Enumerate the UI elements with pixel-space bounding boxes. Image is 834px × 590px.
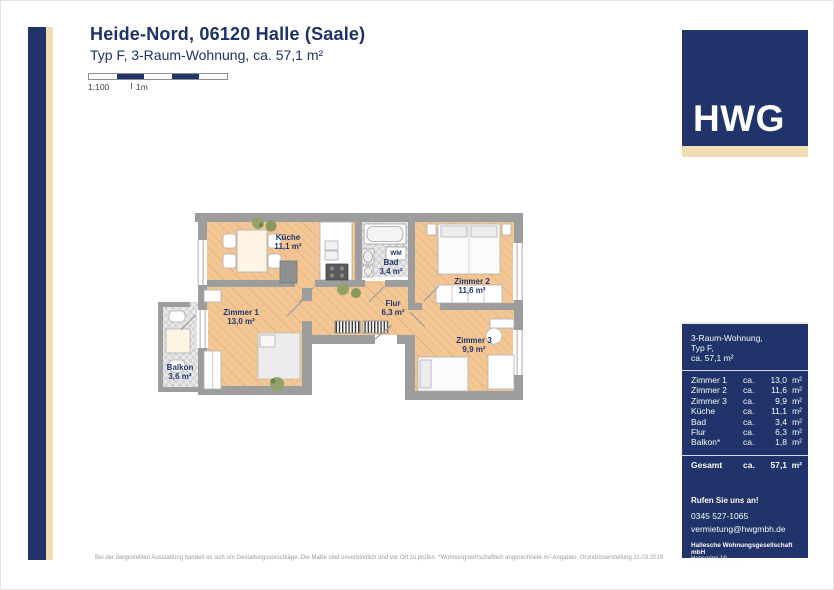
row-value: 1,8 (760, 437, 787, 447)
total-unit: m² (787, 460, 802, 470)
scale-tick (131, 83, 132, 89)
row-value: 11,1 (760, 406, 787, 416)
table-total-row: Gesamt ca. 57,1 m² (691, 460, 802, 470)
row-label: Balkon* (691, 437, 743, 447)
scale-segment (89, 74, 117, 79)
room-label-balkon: Balkon 3,6 m² (167, 363, 194, 381)
row-ca: ca. (743, 375, 760, 385)
scale-segment (117, 74, 145, 79)
room-area: 13,0 m² (223, 317, 259, 326)
row-label: Zimmer 3 (691, 396, 743, 406)
apartment-info-panel: 3-Raum-Wohnung, Typ F, ca. 57,1 m² Zimme… (682, 322, 808, 558)
row-unit: m² (787, 406, 802, 416)
room-area: 11,1 m² (274, 242, 301, 251)
room-name: Zimmer 3 (456, 336, 492, 345)
row-label: Küche (691, 406, 743, 416)
row-ca: ca. (743, 406, 760, 416)
row-label: Zimmer 1 (691, 375, 743, 385)
scale-ratio-label: 1:100 (88, 82, 109, 92)
table-row: Zimmer 1 ca. 13,0 m² (691, 375, 802, 385)
floor-plan-drawing (150, 205, 540, 405)
table-row: Balkon* ca. 1,8 m² (691, 437, 802, 447)
row-value: 3,4 (760, 417, 787, 427)
hwg-logo: HWG (682, 30, 808, 146)
summary-line: Typ F, (691, 343, 802, 353)
room-area: 3,6 m² (167, 372, 194, 381)
total-value: 57,1 (760, 460, 787, 470)
page-subtitle: Typ F, 3-Raum-Wohnung, ca. 57,1 m² (90, 47, 323, 63)
room-area: 11,6 m² (454, 286, 490, 295)
left-navy-strip (28, 27, 46, 560)
row-unit: m² (787, 437, 802, 447)
room-area: 3,4 m² (379, 267, 402, 276)
room-label-bad: Bad 3,4 m² (379, 258, 402, 276)
contact-phone: 0345 527-1065 (691, 511, 802, 521)
page-title: Heide-Nord, 06120 Halle (Saale) (90, 24, 365, 45)
scale-segment (199, 74, 227, 79)
room-area: 6,3 m² (381, 308, 404, 317)
contact-call-line: Rufen Sie uns an! (691, 496, 802, 505)
row-ca: ca. (743, 437, 760, 447)
scale-unit-label: 1m (136, 82, 148, 92)
divider (682, 370, 808, 371)
room-name: Zimmer 2 (454, 277, 490, 286)
total-ca: ca. (743, 460, 760, 470)
row-unit: m² (787, 385, 802, 395)
washing-machine-label: WM (390, 250, 402, 257)
row-label: Zimmer 2 (691, 385, 743, 395)
row-value: 9,9 (760, 396, 787, 406)
table-row: Küche ca. 11,1 m² (691, 406, 802, 416)
row-unit: m² (787, 427, 802, 437)
room-area-table: Zimmer 1 ca. 13,0 m² Zimmer 2 ca. 11,6 m… (691, 375, 802, 448)
table-row: Zimmer 3 ca. 9,9 m² (691, 396, 802, 406)
footer-disclaimer: Bei der dargestellten Ausstattung handel… (95, 555, 715, 561)
room-name: Zimmer 1 (223, 308, 259, 317)
floor-plan: Küche 11,1 m² Bad 3,4 m² Zimmer 2 11,6 m… (150, 205, 540, 405)
left-beige-strip (46, 27, 53, 560)
room-name: Flur (381, 299, 404, 308)
summary-line: 3-Raum-Wohnung, (691, 333, 802, 343)
row-ca: ca. (743, 427, 760, 437)
document-page: Heide-Nord, 06120 Halle (Saale) Typ F, 3… (0, 0, 834, 590)
row-unit: m² (787, 375, 802, 385)
row-unit: m² (787, 396, 802, 406)
row-label: Flur (691, 427, 743, 437)
row-value: 11,6 (760, 385, 787, 395)
apartment-summary: 3-Raum-Wohnung, Typ F, ca. 57,1 m² (691, 333, 802, 363)
scale-segment (172, 74, 200, 79)
room-label-kueche: Küche 11,1 m² (274, 233, 301, 251)
divider (682, 455, 808, 456)
row-value: 6,3 (760, 427, 787, 437)
table-row: Zimmer 2 ca. 11,6 m² (691, 385, 802, 395)
logo-beige-strip (682, 146, 808, 157)
room-name: Bad (379, 258, 402, 267)
scale-bar (88, 73, 228, 80)
summary-line: ca. 57,1 m² (691, 353, 802, 363)
room-name: Küche (274, 233, 301, 242)
contact-email: vermietung@hwgmbh.de (691, 524, 802, 534)
room-label-flur: Flur 6,3 m² (381, 299, 404, 317)
room-area: 9,9 m² (456, 345, 492, 354)
scale-segment (144, 74, 172, 79)
hwg-logo-text: HWG (693, 98, 785, 140)
row-unit: m² (787, 417, 802, 427)
room-label-zimmer2: Zimmer 2 11,6 m² (454, 277, 490, 295)
row-value: 13,0 (760, 375, 787, 385)
room-name: Balkon (167, 363, 194, 372)
contact-address-line2: 06108 Halle (Saale) (691, 563, 802, 570)
row-ca: ca. (743, 417, 760, 427)
table-row: Flur ca. 6,3 m² (691, 427, 802, 437)
stairwell-notch (312, 344, 405, 405)
row-label: Bad (691, 417, 743, 427)
table-row: Bad ca. 3,4 m² (691, 417, 802, 427)
room-label-zimmer3: Zimmer 3 9,9 m² (456, 336, 492, 354)
row-ca: ca. (743, 396, 760, 406)
room-label-zimmer1: Zimmer 1 13,0 m² (223, 308, 259, 326)
total-label: Gesamt (691, 460, 743, 470)
row-ca: ca. (743, 385, 760, 395)
